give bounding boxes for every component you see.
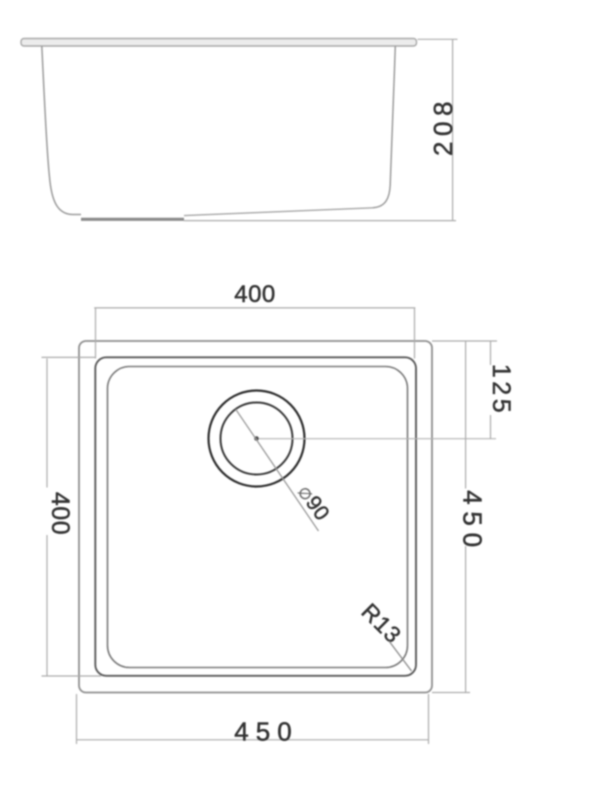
svg-text:450: 450 xyxy=(234,717,298,747)
svg-text:400: 400 xyxy=(46,492,74,535)
svg-text:450: 450 xyxy=(458,490,488,554)
svg-text:125: 125 xyxy=(487,364,515,416)
svg-text:400: 400 xyxy=(234,281,276,308)
svg-text:R13: R13 xyxy=(356,598,406,648)
svg-text:208: 208 xyxy=(428,96,458,156)
